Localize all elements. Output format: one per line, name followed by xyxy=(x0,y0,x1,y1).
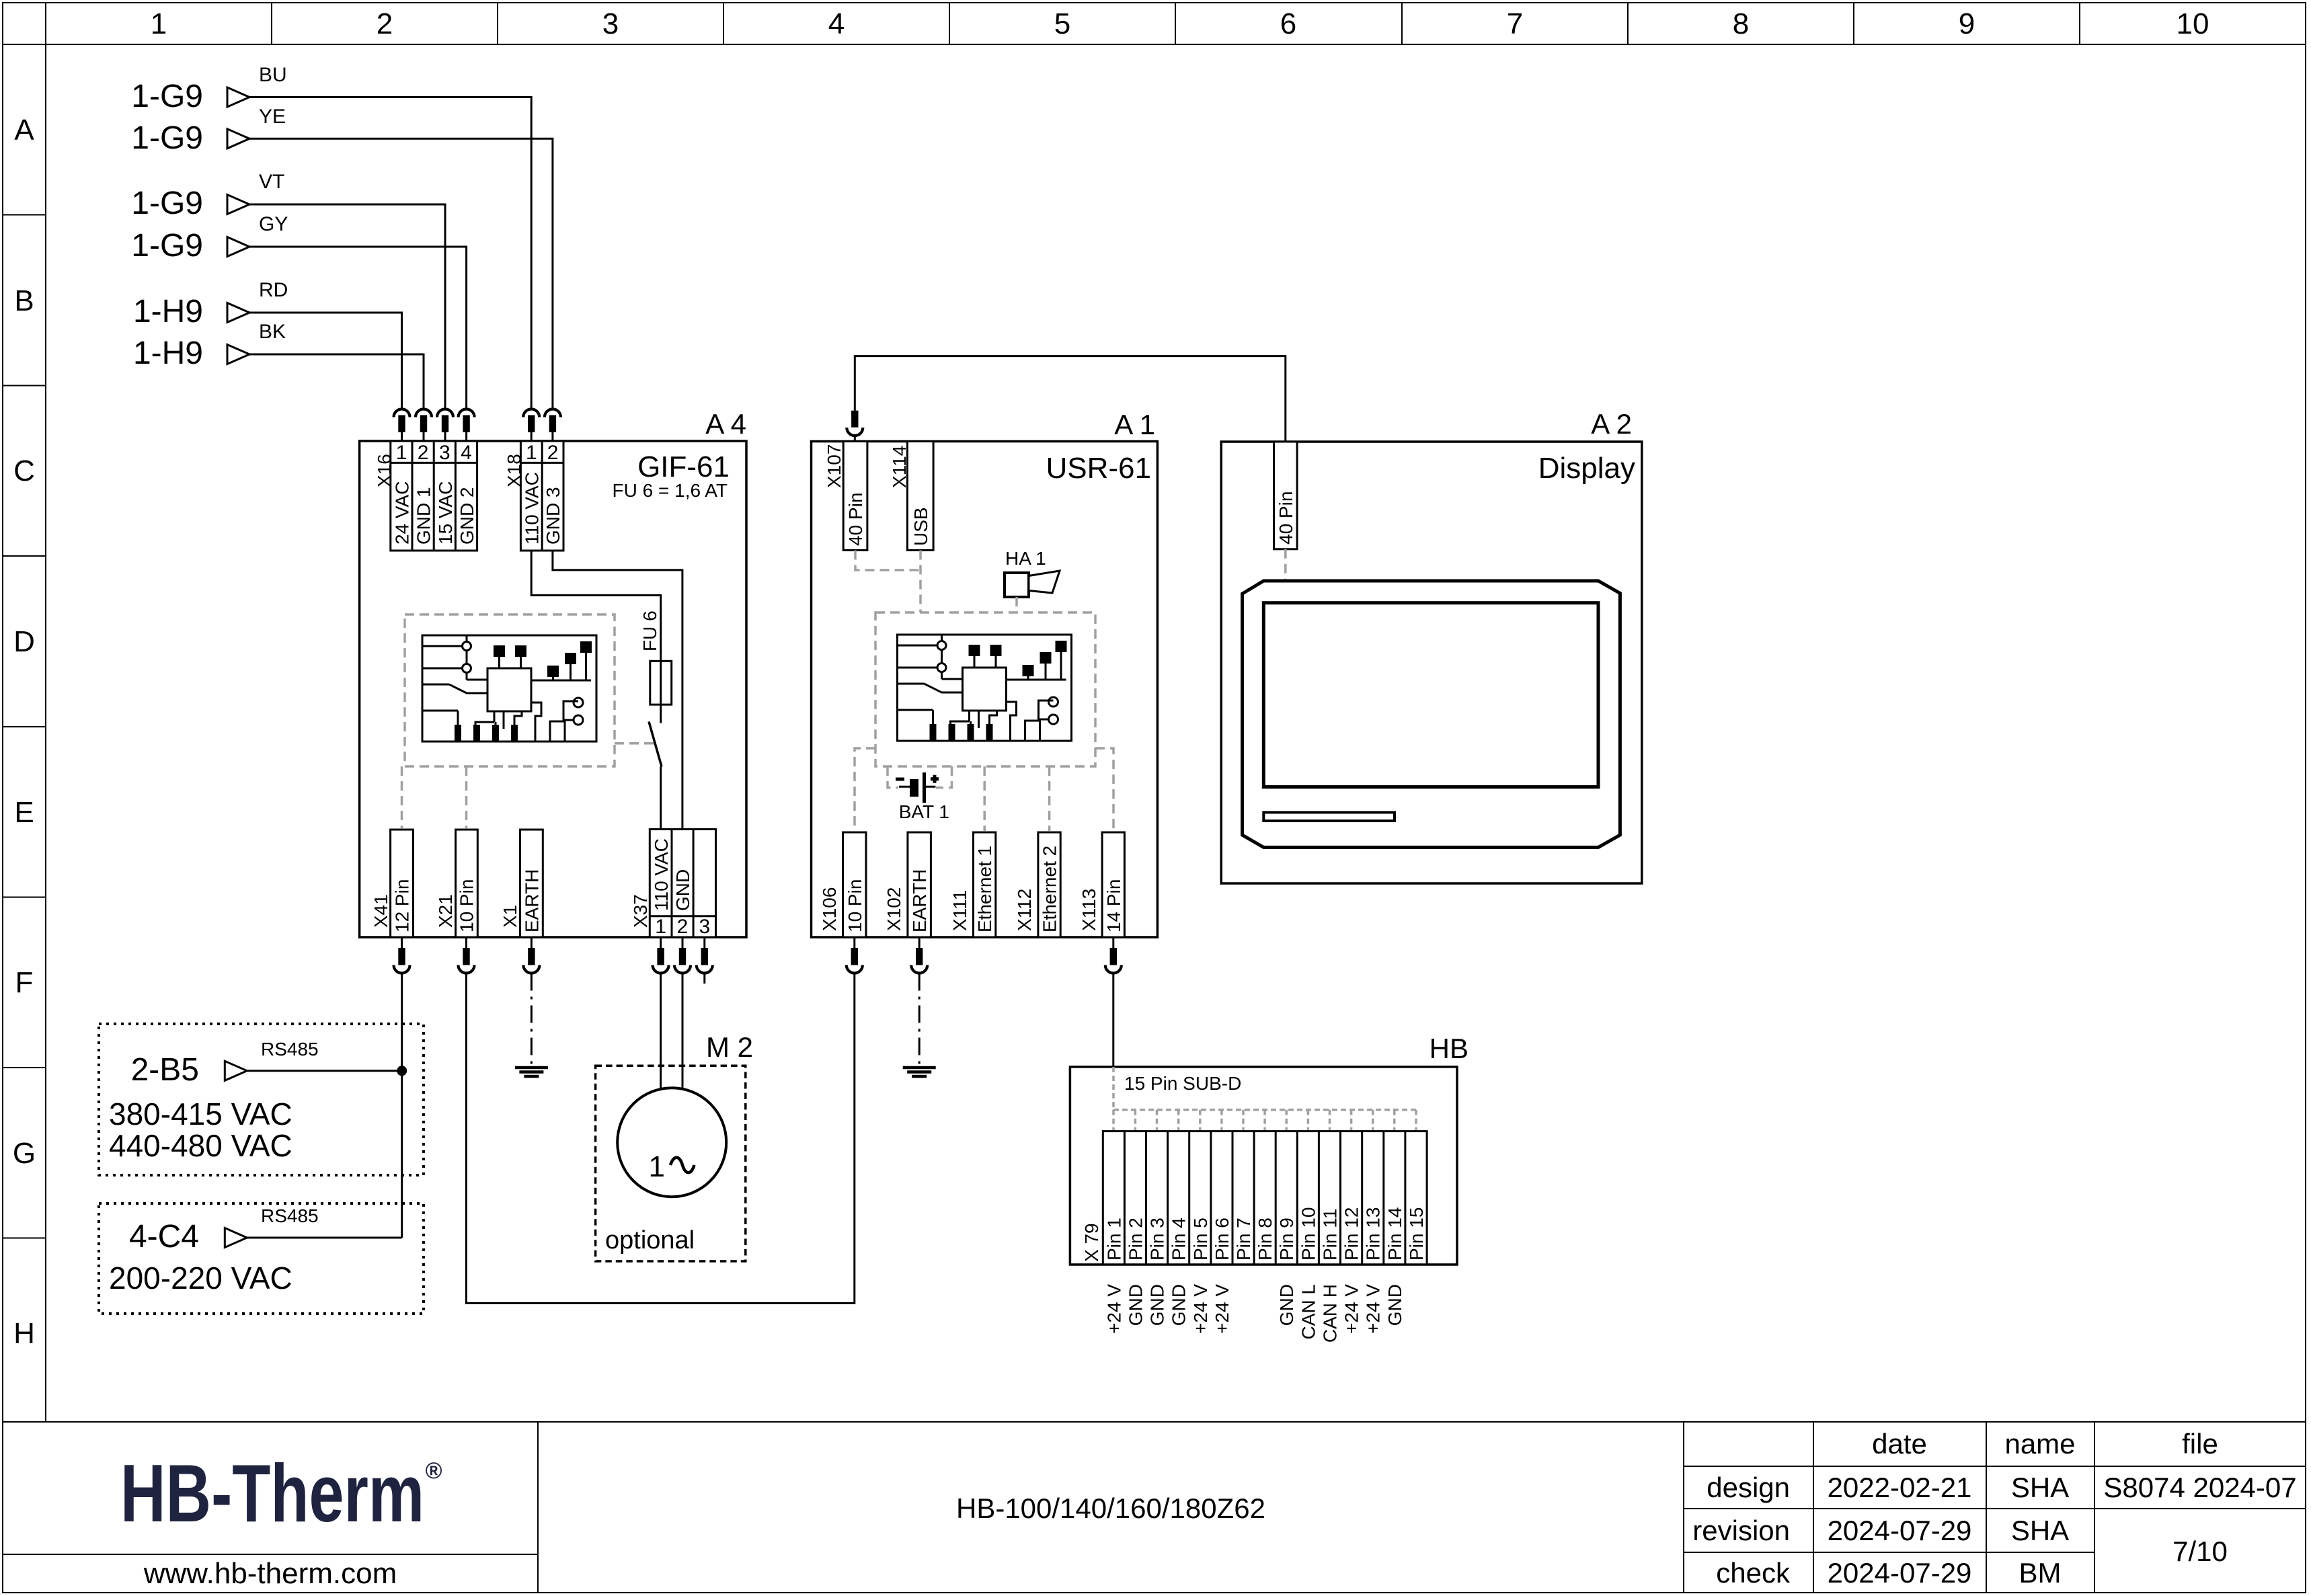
svg-text:Display: Display xyxy=(1538,452,1635,485)
svg-text:24 VAC: 24 VAC xyxy=(392,481,413,545)
svg-text:G: G xyxy=(13,1137,36,1170)
svg-text:200-220 VAC: 200-220 VAC xyxy=(109,1261,292,1295)
svg-text:Pin 1: Pin 1 xyxy=(1103,1218,1124,1261)
svg-text:Pin 6: Pin 6 xyxy=(1212,1218,1232,1261)
svg-text:X21: X21 xyxy=(435,894,456,928)
svg-text:6: 6 xyxy=(1280,7,1296,40)
svg-text:1: 1 xyxy=(396,442,407,464)
svg-text:X106: X106 xyxy=(819,887,840,931)
svg-text:C: C xyxy=(13,454,35,487)
svg-text:Pin 14: Pin 14 xyxy=(1384,1207,1405,1261)
svg-text:1-H9: 1-H9 xyxy=(133,294,203,329)
svg-text:12 Pin: 12 Pin xyxy=(392,879,413,932)
svg-text:X1: X1 xyxy=(500,905,520,928)
svg-text:X114: X114 xyxy=(889,446,910,488)
svg-text:HA 1: HA 1 xyxy=(1005,548,1046,569)
svg-text:GND: GND xyxy=(1169,1284,1189,1326)
svg-text:date: date xyxy=(1872,1428,1927,1460)
svg-text:4: 4 xyxy=(828,7,845,40)
svg-text:USR-61: USR-61 xyxy=(1046,452,1152,485)
svg-text:X113: X113 xyxy=(1079,889,1099,931)
svg-text:BM: BM xyxy=(2019,1557,2062,1589)
svg-text:8: 8 xyxy=(1733,7,1749,40)
svg-text:380-415 VAC: 380-415 VAC xyxy=(109,1096,292,1131)
svg-text:www.hb-therm.com: www.hb-therm.com xyxy=(143,1557,397,1590)
svg-text:GND 1: GND 1 xyxy=(414,487,434,545)
svg-text:3: 3 xyxy=(602,7,619,40)
svg-text:X18: X18 xyxy=(504,454,524,487)
svg-text:D: D xyxy=(13,625,35,658)
svg-text:E: E xyxy=(14,796,34,829)
svg-text:X41: X41 xyxy=(370,894,391,928)
svg-text:YE: YE xyxy=(259,106,286,128)
svg-text:A 1: A 1 xyxy=(1114,409,1155,440)
svg-text:7/10: 7/10 xyxy=(2172,1535,2228,1567)
svg-text:4-C4: 4-C4 xyxy=(129,1219,199,1254)
svg-text:FU 6: FU 6 xyxy=(639,610,660,651)
svg-text:1: 1 xyxy=(649,1150,665,1183)
svg-text:3: 3 xyxy=(699,916,710,938)
svg-text:EARTH: EARTH xyxy=(909,869,930,932)
svg-text:10 Pin: 10 Pin xyxy=(845,879,865,932)
svg-text:1: 1 xyxy=(151,7,167,40)
svg-text:2-B5: 2-B5 xyxy=(131,1052,199,1088)
svg-text:Pin 9: Pin 9 xyxy=(1276,1218,1297,1261)
svg-text:1-G9: 1-G9 xyxy=(131,79,203,114)
svg-text:Ethernet 1: Ethernet 1 xyxy=(974,846,995,932)
svg-text:+24 V: +24 V xyxy=(1190,1284,1211,1334)
svg-text:optional: optional xyxy=(605,1226,695,1254)
svg-text:SHA: SHA xyxy=(2011,1515,2069,1546)
svg-text:®: ® xyxy=(425,1458,442,1484)
svg-text:Pin 11: Pin 11 xyxy=(1320,1209,1341,1261)
svg-text:2024-07-29: 2024-07-29 xyxy=(1828,1557,1972,1589)
svg-text:RS485: RS485 xyxy=(261,1205,319,1226)
svg-text:14 Pin: 14 Pin xyxy=(1103,879,1124,932)
svg-text:H: H xyxy=(13,1317,35,1350)
svg-text:15 Pin SUB-D: 15 Pin SUB-D xyxy=(1124,1073,1241,1094)
svg-text:+24 V: +24 V xyxy=(1363,1284,1384,1334)
svg-text:A 2: A 2 xyxy=(1591,408,1632,440)
svg-text:1-H9: 1-H9 xyxy=(133,335,203,371)
svg-text:GIF-61: GIF-61 xyxy=(637,450,730,483)
svg-text:Pin 4: Pin 4 xyxy=(1169,1218,1189,1261)
svg-text:Pin 5: Pin 5 xyxy=(1190,1218,1211,1261)
svg-text:2: 2 xyxy=(418,442,429,464)
svg-text:HB-100/140/160/180Z62: HB-100/140/160/180Z62 xyxy=(956,1492,1265,1524)
svg-text:440-480 VAC: 440-480 VAC xyxy=(109,1128,292,1163)
svg-text:X112: X112 xyxy=(1014,889,1035,931)
svg-text:revision: revision xyxy=(1692,1515,1790,1546)
svg-text:40 Pin: 40 Pin xyxy=(1276,491,1296,545)
svg-text:3: 3 xyxy=(439,442,451,464)
svg-text:file: file xyxy=(2182,1428,2218,1460)
svg-text:A: A xyxy=(14,114,34,147)
svg-text:2: 2 xyxy=(377,7,393,40)
svg-text:Pin 15: Pin 15 xyxy=(1406,1207,1427,1261)
svg-text:5: 5 xyxy=(1054,7,1070,40)
svg-text:BAT 1: BAT 1 xyxy=(899,801,949,822)
svg-text:M 2: M 2 xyxy=(706,1031,753,1063)
svg-text:Pin 7: Pin 7 xyxy=(1233,1218,1254,1261)
svg-text:4: 4 xyxy=(461,442,472,464)
svg-text:15 VAC: 15 VAC xyxy=(435,481,456,545)
svg-text:GND: GND xyxy=(1384,1284,1405,1326)
svg-text:+24 V: +24 V xyxy=(1103,1284,1124,1334)
svg-text:GND: GND xyxy=(1147,1284,1168,1326)
svg-text:X37: X37 xyxy=(630,894,651,928)
svg-text:GND: GND xyxy=(672,869,693,911)
svg-text:CAN H: CAN H xyxy=(1320,1284,1341,1343)
svg-text:HB-Therm: HB-Therm xyxy=(120,1447,424,1539)
svg-text:9: 9 xyxy=(1959,7,1975,40)
svg-text:S8074 2024-07: S8074 2024-07 xyxy=(2103,1472,2296,1503)
svg-text:X111: X111 xyxy=(949,890,970,931)
svg-text:X 79: X 79 xyxy=(1081,1223,1102,1262)
svg-text:2: 2 xyxy=(547,442,559,464)
svg-text:+24 V: +24 V xyxy=(1341,1284,1362,1334)
svg-text:RS485: RS485 xyxy=(261,1039,319,1060)
svg-text:BU: BU xyxy=(259,64,287,86)
svg-text:+24 V: +24 V xyxy=(1212,1284,1232,1334)
svg-text:B: B xyxy=(14,284,34,317)
svg-text:7: 7 xyxy=(1507,7,1523,40)
svg-text:design: design xyxy=(1707,1472,1790,1503)
svg-text:GY: GY xyxy=(259,213,288,235)
svg-text:GND: GND xyxy=(1125,1284,1146,1326)
svg-text:GND 2: GND 2 xyxy=(457,487,477,545)
svg-text:HB: HB xyxy=(1429,1033,1468,1064)
svg-text:GND: GND xyxy=(1276,1284,1297,1326)
svg-text:F: F xyxy=(15,966,34,999)
svg-text:EARTH: EARTH xyxy=(521,869,542,932)
svg-text:2024-07-29: 2024-07-29 xyxy=(1828,1515,1972,1546)
svg-text:VT: VT xyxy=(259,171,284,193)
svg-text:check: check xyxy=(1716,1557,1791,1589)
svg-text:Pin 8: Pin 8 xyxy=(1255,1218,1276,1261)
svg-text:10 Pin: 10 Pin xyxy=(457,879,477,932)
svg-text:2022-02-21: 2022-02-21 xyxy=(1828,1472,1972,1503)
svg-text:X107: X107 xyxy=(824,444,845,488)
svg-text:X16: X16 xyxy=(374,454,395,487)
svg-text:1-G9: 1-G9 xyxy=(131,228,203,264)
svg-text:FU 6 = 1,6 AT: FU 6 = 1,6 AT xyxy=(613,480,728,501)
svg-text:Pin 12: Pin 12 xyxy=(1341,1207,1362,1261)
svg-text:1: 1 xyxy=(655,916,666,938)
svg-text:2: 2 xyxy=(677,916,689,938)
svg-text:CAN L: CAN L xyxy=(1298,1284,1319,1339)
svg-text:X102: X102 xyxy=(884,887,904,931)
svg-text:name: name xyxy=(2004,1428,2075,1460)
svg-text:GND 3: GND 3 xyxy=(543,487,563,545)
svg-text:RD: RD xyxy=(259,279,288,301)
svg-text:10: 10 xyxy=(2177,7,2209,40)
svg-text:110 VAC: 110 VAC xyxy=(651,838,672,911)
svg-text:Ethernet 2: Ethernet 2 xyxy=(1040,846,1060,932)
svg-text:SHA: SHA xyxy=(2011,1472,2069,1503)
svg-text:1-G9: 1-G9 xyxy=(131,120,203,156)
svg-text:40 Pin: 40 Pin xyxy=(845,493,866,546)
svg-text:1-G9: 1-G9 xyxy=(131,186,203,221)
svg-text:Pin 2: Pin 2 xyxy=(1125,1218,1146,1261)
svg-text:Pin 3: Pin 3 xyxy=(1147,1218,1168,1261)
svg-text:Pin 13: Pin 13 xyxy=(1363,1207,1384,1261)
svg-text:A 4: A 4 xyxy=(705,408,746,440)
svg-text:Pin 10: Pin 10 xyxy=(1298,1207,1319,1261)
svg-text:BK: BK xyxy=(259,321,286,343)
svg-text:USB: USB xyxy=(910,507,931,546)
svg-text:1: 1 xyxy=(526,442,537,464)
